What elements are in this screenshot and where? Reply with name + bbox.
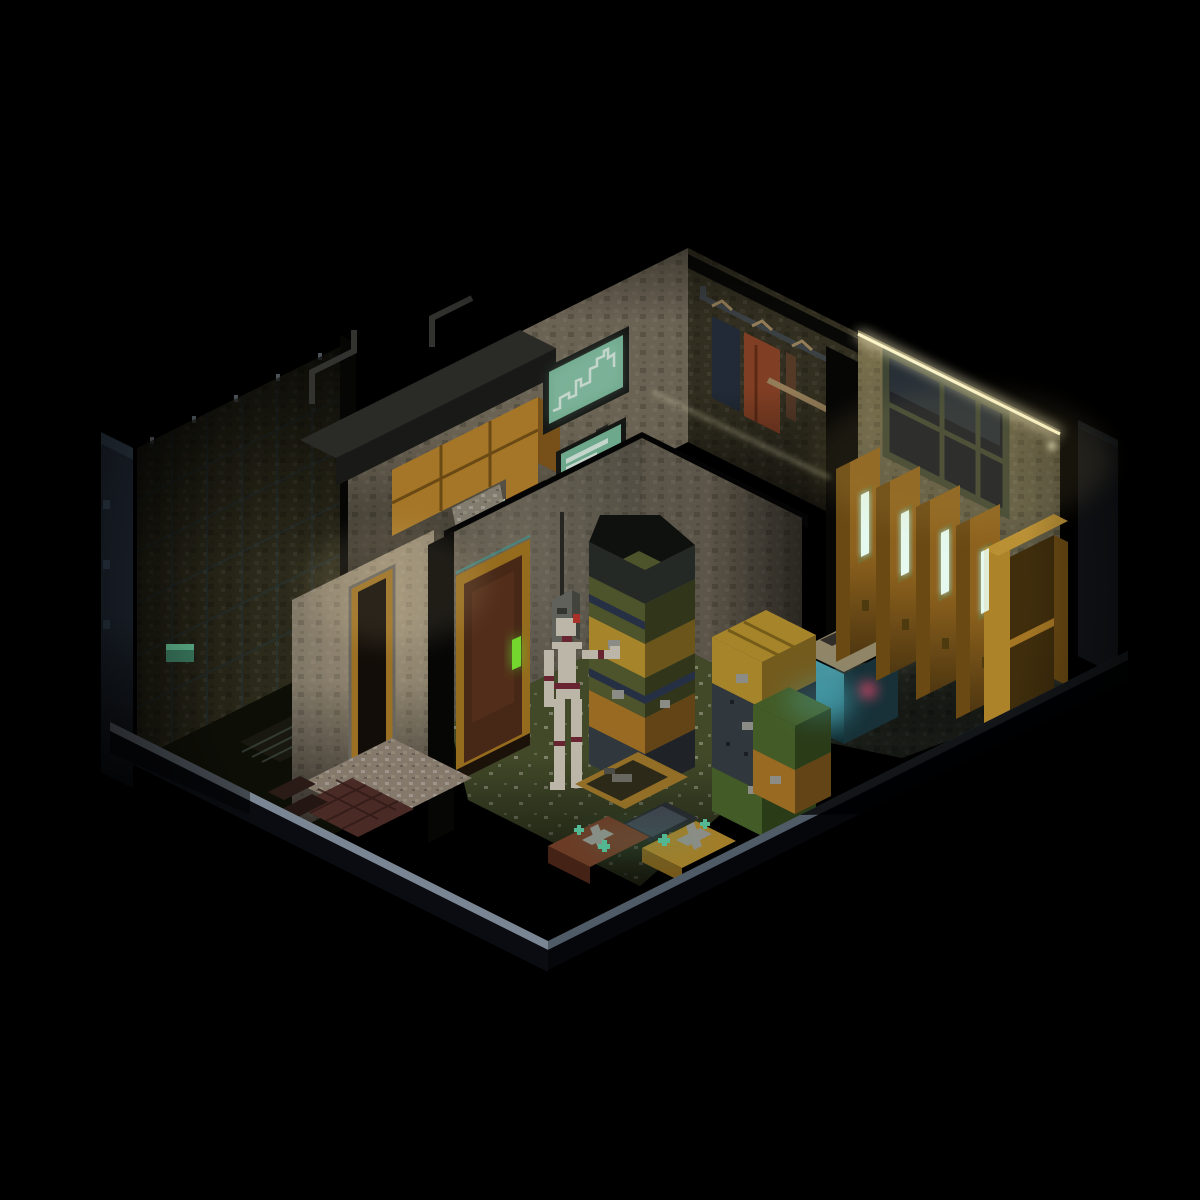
room-warm-glow (810, 390, 1110, 530)
aquarium-accent (786, 678, 854, 722)
voxel-scene (0, 0, 1200, 1200)
scene-canvas (0, 0, 1200, 1200)
top-fade (0, 140, 1200, 320)
handle-accent (512, 636, 521, 670)
hall-warm-glow (305, 525, 485, 645)
